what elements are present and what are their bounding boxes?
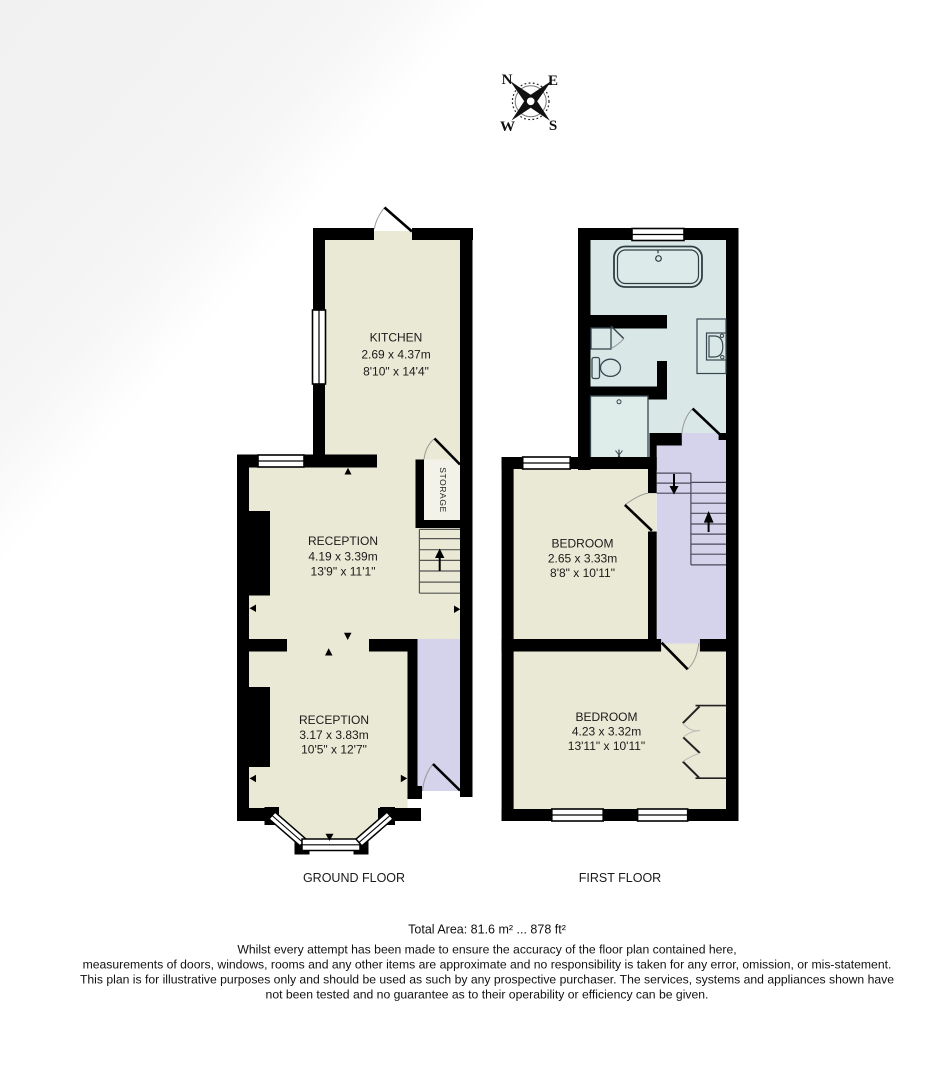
svg-text:4.23 x 3.32m: 4.23 x 3.32m: [572, 725, 641, 739]
svg-text:Total Area: 81.6 m² ... 878 ft: Total Area: 81.6 m² ... 878 ft²: [408, 923, 566, 937]
svg-text:2.69 x 4.37m: 2.69 x 4.37m: [361, 348, 430, 362]
svg-text:8'8" x 10'11": 8'8" x 10'11": [550, 566, 615, 580]
svg-text:4.19 x 3.39m: 4.19 x 3.39m: [308, 550, 377, 564]
svg-text:3.17 x 3.83m: 3.17 x 3.83m: [299, 728, 368, 742]
svg-text:2.65 x 3.33m: 2.65 x 3.33m: [548, 552, 617, 566]
svg-text:BEDROOM: BEDROOM: [551, 537, 613, 551]
svg-text:13'11" x 10'11": 13'11" x 10'11": [568, 739, 645, 753]
svg-text:13'9" x 11'1": 13'9" x 11'1": [311, 565, 376, 579]
svg-text:RECEPTION: RECEPTION: [299, 713, 369, 727]
svg-text:N: N: [502, 72, 513, 88]
svg-text:E: E: [548, 73, 558, 89]
svg-text:measurements of doors, windows: measurements of doors, windows, rooms an…: [83, 958, 892, 972]
svg-text:RECEPTION: RECEPTION: [308, 534, 378, 548]
svg-text:not been tested and no guarant: not been tested and no guarantee as to t…: [266, 988, 709, 1002]
svg-text:STORAGE: STORAGE: [438, 467, 448, 513]
svg-text:FIRST FLOOR: FIRST FLOOR: [579, 871, 661, 885]
svg-text:Whilst every attempt has been: Whilst every attempt has been made to en…: [237, 943, 736, 957]
svg-text:8'10" x 14'4": 8'10" x 14'4": [363, 365, 429, 379]
svg-text:W: W: [500, 119, 515, 135]
svg-text:S: S: [549, 118, 557, 134]
svg-text:10'5" x 12'7": 10'5" x 12'7": [301, 743, 367, 757]
svg-text:GROUND FLOOR: GROUND FLOOR: [303, 871, 405, 885]
svg-text:BEDROOM: BEDROOM: [575, 710, 637, 724]
svg-text:KITCHEN: KITCHEN: [370, 331, 423, 345]
svg-text:This plan is for illustrative: This plan is for illustrative purposes o…: [80, 973, 894, 987]
